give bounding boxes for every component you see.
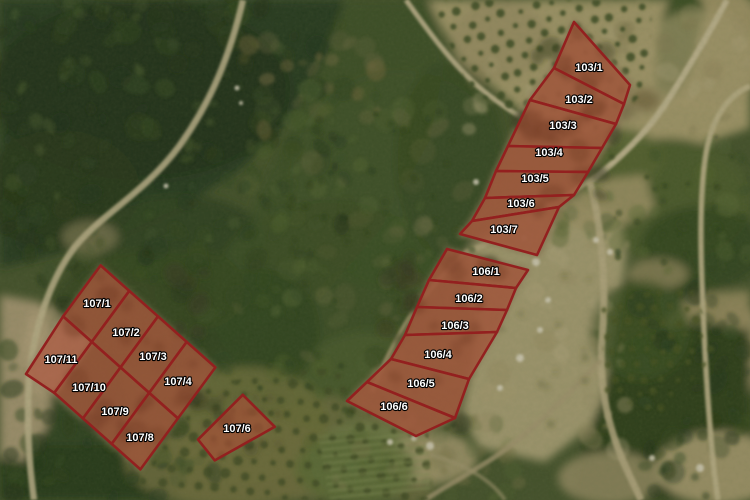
svg-text:106/1: 106/1 <box>472 266 500 278</box>
svg-text:107/11: 107/11 <box>44 354 77 366</box>
svg-text:103/7: 103/7 <box>490 224 518 236</box>
svg-text:103/6: 103/6 <box>507 198 535 210</box>
svg-text:107/10: 107/10 <box>72 382 106 394</box>
svg-text:107/9: 107/9 <box>101 406 129 418</box>
svg-text:106/2: 106/2 <box>455 293 483 305</box>
svg-text:107/3: 107/3 <box>139 351 167 363</box>
svg-text:106/4: 106/4 <box>424 349 452 361</box>
svg-text:103/4: 103/4 <box>535 147 563 159</box>
svg-text:106/6: 106/6 <box>380 401 408 413</box>
svg-text:106/3: 106/3 <box>441 320 469 332</box>
svg-text:107/1: 107/1 <box>83 298 111 310</box>
svg-text:107/6: 107/6 <box>223 423 251 435</box>
svg-text:103/3: 103/3 <box>549 120 577 132</box>
svg-text:107/8: 107/8 <box>126 432 154 444</box>
svg-text:106/5: 106/5 <box>407 378 435 390</box>
svg-text:103/1: 103/1 <box>575 62 603 74</box>
svg-text:107/2: 107/2 <box>112 327 140 339</box>
svg-text:103/2: 103/2 <box>565 94 593 106</box>
svg-text:107/4: 107/4 <box>164 376 192 388</box>
svg-text:103/5: 103/5 <box>521 173 549 185</box>
